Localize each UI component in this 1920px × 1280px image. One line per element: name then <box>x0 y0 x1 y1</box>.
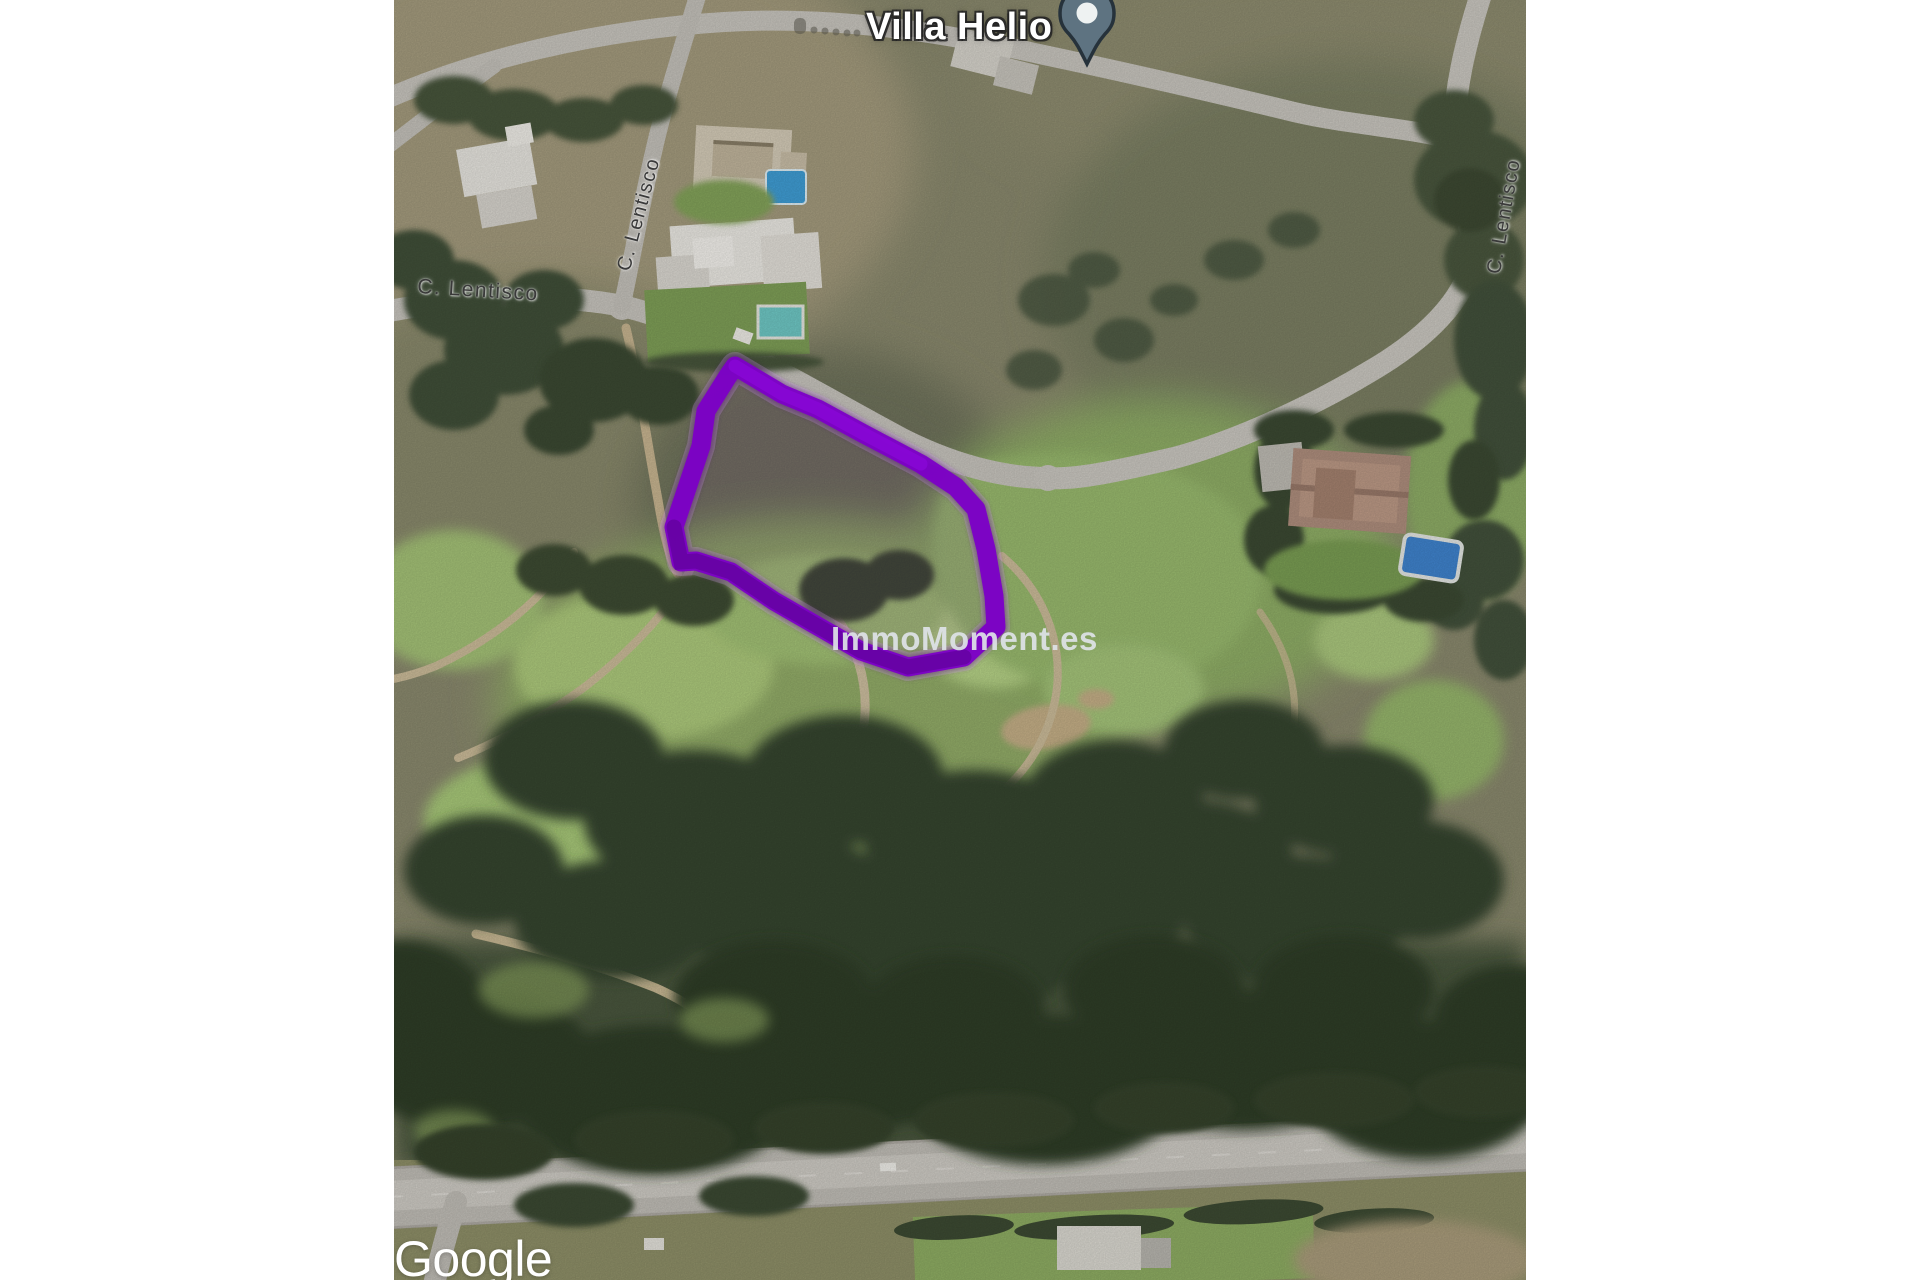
satellite-map-image: Villa Helio C. Lentisco C. Lentisco C. L… <box>394 0 1526 1280</box>
place-label: Villa Helio <box>866 8 1052 46</box>
screenshot-stage: Villa Helio C. Lentisco C. Lentisco C. L… <box>0 0 1920 1280</box>
watermark: ImmoMoment.es <box>831 622 1098 655</box>
google-attribution[interactable]: Google <box>394 1234 552 1280</box>
